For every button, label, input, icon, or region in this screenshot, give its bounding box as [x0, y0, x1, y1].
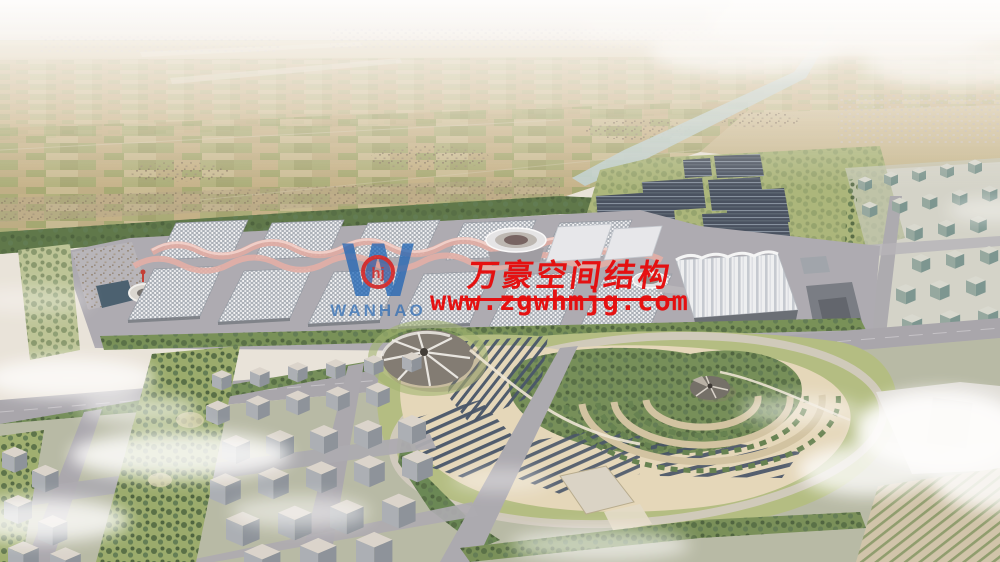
scene-svg [0, 0, 1000, 562]
warm-tint [0, 0, 1000, 562]
rendering-canvas: W hj WANHAO 万豪空间结构 www.zgwhmjg.com [0, 0, 1000, 562]
